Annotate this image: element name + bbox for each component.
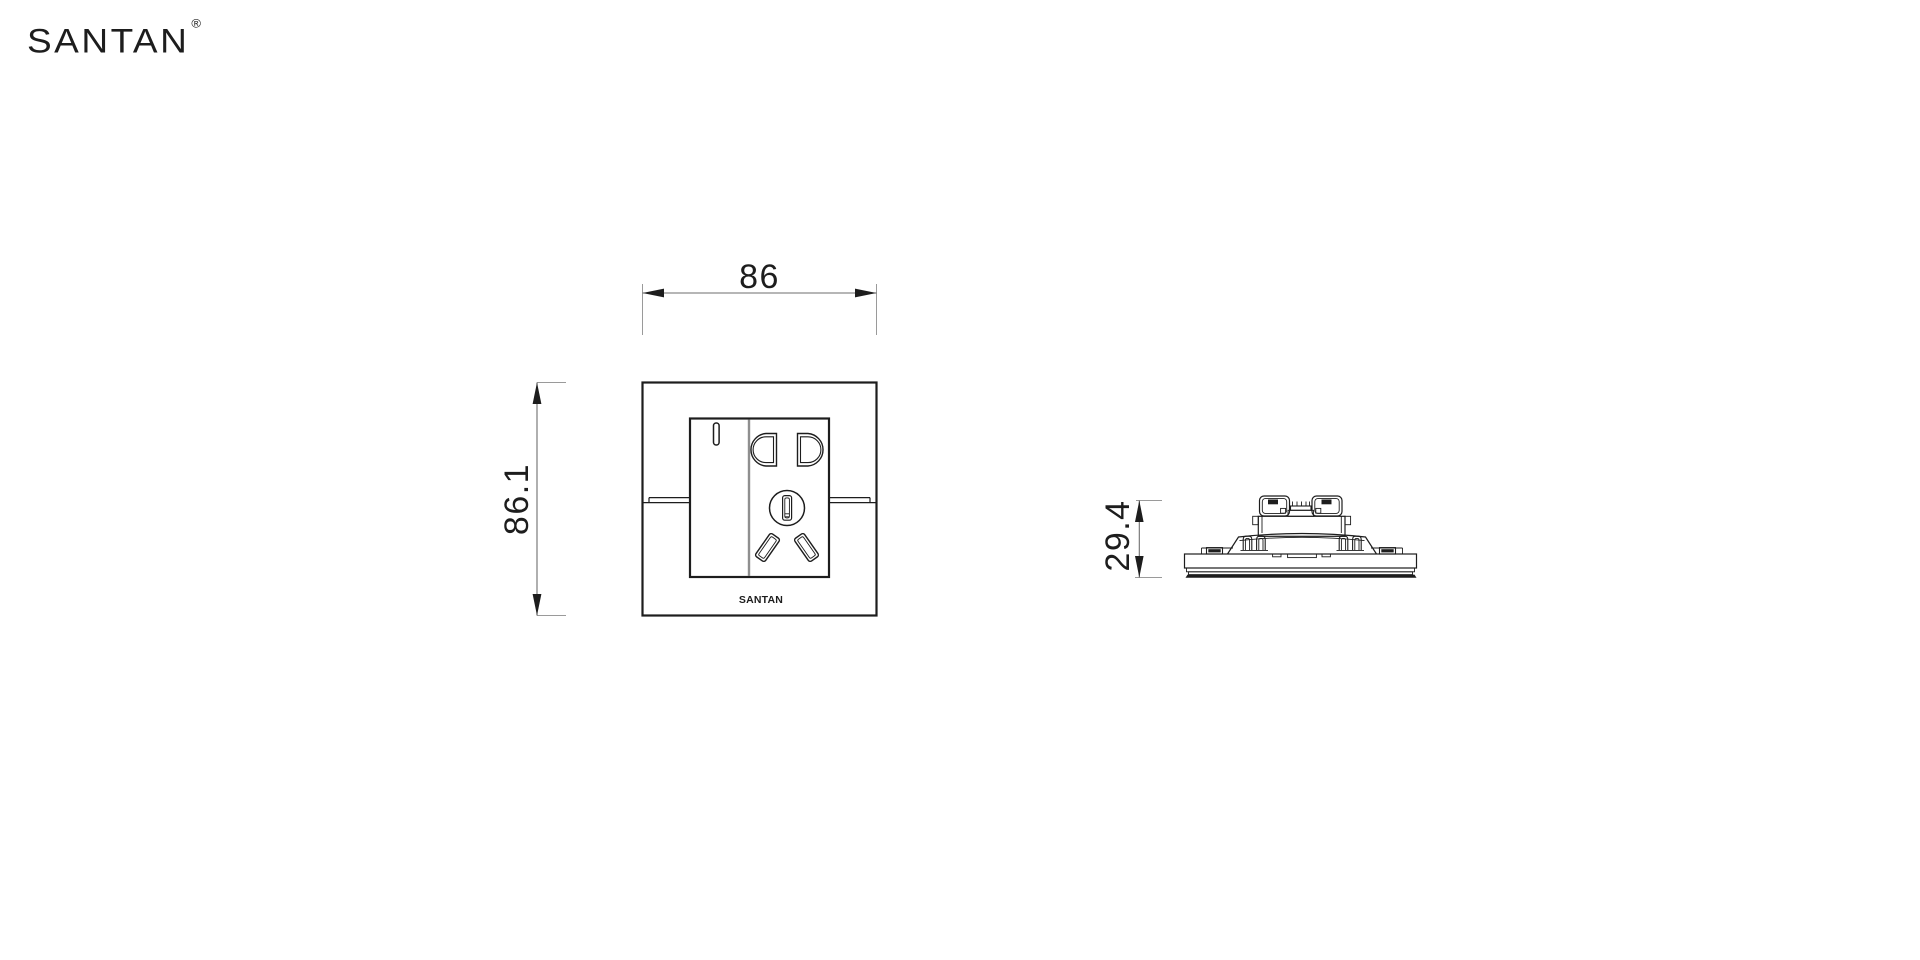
switch-indicator-slot xyxy=(714,423,720,445)
depth-dimension: 29.4 xyxy=(1099,499,1162,577)
height-dimension-value: 86.1 xyxy=(498,463,536,535)
two-pin-hole-right xyxy=(798,434,824,467)
plate-brand-mark: SANTAN xyxy=(739,594,783,606)
center-terminal-block xyxy=(1288,502,1314,517)
arrowhead-right-icon xyxy=(855,289,877,298)
glass-panel-edge xyxy=(1186,575,1417,578)
three-pin-slot-left xyxy=(755,533,781,563)
side-view-drawing: 29.4 xyxy=(1099,496,1417,578)
plate-seam xyxy=(644,498,876,503)
width-dimension: 86 xyxy=(643,258,877,335)
drawing-canvas: 86 86.1 xyxy=(0,0,1920,960)
arrowhead-up-icon xyxy=(533,383,542,405)
cover-plate-profile xyxy=(1185,554,1417,578)
ground-pin-hole xyxy=(770,491,805,526)
depth-dimension-value: 29.4 xyxy=(1099,499,1137,571)
height-dimension: 86.1 xyxy=(498,383,566,616)
two-pin-hole-left xyxy=(751,434,777,467)
arrowhead-left-icon xyxy=(643,289,665,298)
technical-drawing-page: SANTAN® 86 86.1 xyxy=(0,0,1920,960)
arrowhead-down-icon xyxy=(533,594,542,616)
terminal-clip-left xyxy=(1260,496,1290,516)
terminal-clip-right xyxy=(1312,496,1342,516)
three-pin-slot-right xyxy=(794,533,820,563)
front-view-drawing: 86 86.1 xyxy=(498,258,877,616)
width-dimension-value: 86 xyxy=(739,258,780,296)
